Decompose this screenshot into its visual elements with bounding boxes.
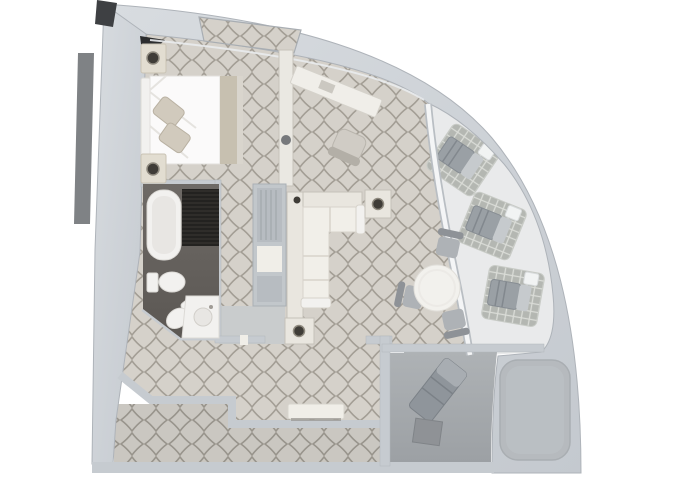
hot-tub-inner bbox=[506, 366, 564, 454]
toilet bbox=[147, 272, 185, 292]
drinks-table bbox=[523, 272, 539, 286]
sofa-armrest bbox=[301, 298, 331, 308]
sofa-corner-lamp bbox=[294, 197, 301, 204]
square-table bbox=[412, 418, 442, 446]
sink-vanity bbox=[182, 296, 219, 338]
table-lamp bbox=[147, 163, 159, 175]
wall-end-cap bbox=[240, 335, 248, 345]
bathtub-inner bbox=[152, 196, 176, 254]
bed-headboard bbox=[141, 78, 150, 162]
wall-terrace-left bbox=[380, 336, 390, 466]
console-shadow bbox=[291, 418, 341, 421]
terrace-table bbox=[412, 418, 442, 446]
console-sideboard bbox=[288, 404, 344, 419]
partition-wall bbox=[279, 50, 293, 186]
sofa-back-left bbox=[287, 192, 303, 318]
shower bbox=[182, 189, 219, 246]
closet-shelf bbox=[257, 246, 282, 272]
closet-wardrobe bbox=[253, 184, 286, 306]
bottom-wall bbox=[92, 462, 494, 473]
floor-plan bbox=[0, 0, 680, 486]
table-lamp bbox=[147, 52, 159, 64]
faucet bbox=[209, 305, 213, 309]
bathroom bbox=[143, 184, 219, 338]
floor-plan-canvas bbox=[0, 0, 680, 486]
round-dining-table bbox=[414, 265, 460, 311]
sofa-armrest bbox=[356, 205, 365, 234]
table-lamp bbox=[373, 199, 384, 210]
table-lamp bbox=[294, 326, 305, 337]
sink-basin bbox=[194, 308, 212, 326]
bed-runner bbox=[220, 76, 237, 164]
balcony-set-3 bbox=[481, 265, 546, 328]
bed-footboard bbox=[237, 76, 243, 164]
closet-drawers bbox=[257, 276, 282, 302]
partition-downlight bbox=[281, 135, 291, 145]
wall-terrace-top bbox=[382, 344, 544, 352]
